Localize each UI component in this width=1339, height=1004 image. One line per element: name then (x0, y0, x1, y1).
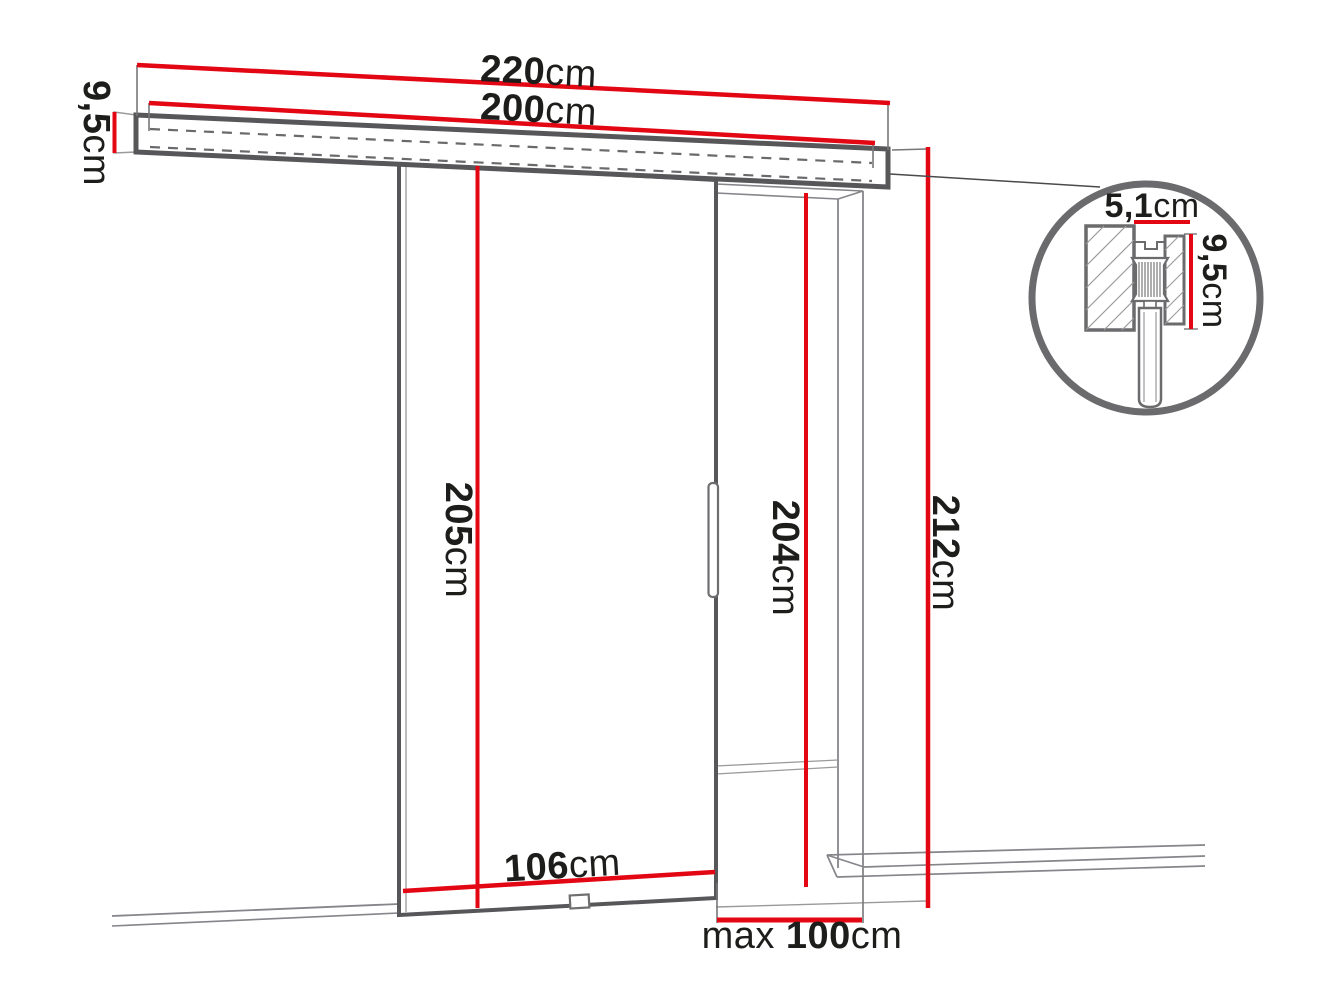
opening-top-corner-edge (838, 191, 863, 199)
detail-roller (1132, 258, 1168, 301)
diagram-page: 220cm 200cm 9,5cm 205cm 204cm 212cm 106c… (0, 0, 1339, 1004)
opening-top-front-edge (716, 193, 838, 199)
floor-line-right (716, 901, 926, 907)
label-track-length: 200cm (479, 86, 598, 134)
right-skirting-top-back-edge (827, 845, 1205, 855)
label-detail-profile-width: 5,1cm (1104, 187, 1199, 225)
door-handle (709, 483, 719, 597)
label-overall-height: 212cm (924, 495, 966, 612)
detail-door-panel-edge (1139, 308, 1161, 407)
label-door-panel-height: 205cm (437, 482, 479, 599)
floor-guide (570, 894, 590, 908)
label-opening-height: 204cm (764, 500, 806, 617)
back-wall-baseboard-bottom (716, 767, 838, 774)
back-wall-baseboard-top (716, 760, 838, 766)
tick-212-top (892, 149, 927, 150)
detail-leader-line (890, 174, 1100, 187)
label-rail-profile-height: 9,5cm (75, 80, 117, 186)
label-max-opening-width: max100cm (702, 915, 903, 957)
label-door-panel-width: 106cm (503, 842, 622, 891)
diagram-canvas: 220cm 200cm 9,5cm 205cm 204cm 212cm 106c… (0, 0, 1339, 1004)
label-detail-profile-height: 9,5cm (1195, 233, 1233, 328)
right-skirting-bottom-edge (837, 866, 1205, 877)
right-skirting-top-front-edge (864, 856, 1205, 867)
